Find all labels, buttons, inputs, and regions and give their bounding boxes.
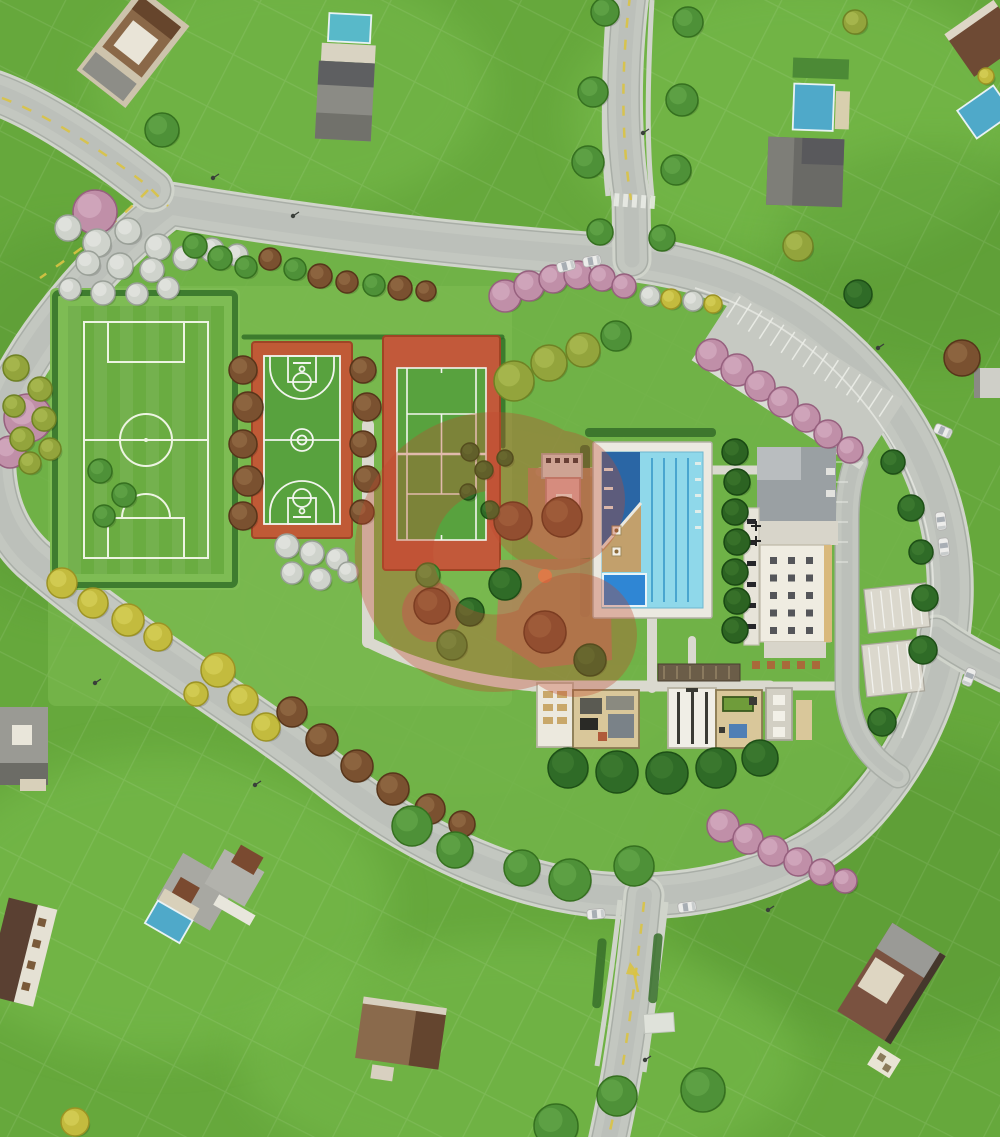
planter <box>752 661 760 669</box>
tree-yellow <box>144 623 173 652</box>
tree-flowering-pink <box>833 869 858 894</box>
tree-highlight <box>604 324 621 341</box>
restroom-building-part <box>557 704 567 711</box>
tree-highlight <box>663 291 674 302</box>
lamp-head <box>766 908 770 912</box>
tree-yellow <box>252 713 281 742</box>
tree-green <box>183 234 208 259</box>
tree-brown <box>353 393 382 422</box>
tree-highlight <box>725 501 739 515</box>
house-northeast-part <box>793 57 850 79</box>
tree-highlight <box>840 439 854 453</box>
skylight <box>806 610 813 617</box>
tree-green <box>572 146 605 179</box>
tree-green <box>112 483 137 508</box>
storage-units-part <box>773 727 785 737</box>
tree-yellow <box>661 289 683 311</box>
tree-shrub-white <box>281 562 304 585</box>
tree-highlight <box>261 250 273 262</box>
tree-green <box>392 806 433 846</box>
tree-green <box>88 459 113 484</box>
tree-shrub-white <box>91 281 116 306</box>
tree-olive <box>783 231 814 262</box>
tree-highlight <box>664 158 681 175</box>
tree-highlight <box>210 248 223 261</box>
tree-highlight <box>845 12 858 25</box>
tree-olive <box>39 438 62 461</box>
window-tick <box>747 561 756 566</box>
tree-highlight <box>357 468 371 482</box>
tree-highlight <box>699 342 717 360</box>
tree-olive <box>843 10 868 35</box>
tree-highlight <box>81 591 98 608</box>
pergola-roof <box>658 664 740 681</box>
pool-ledge-mark <box>695 526 701 529</box>
tree-highlight <box>441 835 461 855</box>
tree-shrub-white <box>107 253 134 280</box>
tree-shrub-white <box>157 277 180 300</box>
tree-highlight <box>727 531 741 545</box>
house-northeast-part <box>802 138 845 165</box>
tree-highlight <box>396 809 418 831</box>
tree-brown <box>229 430 258 459</box>
tree-darkgreen <box>596 751 639 793</box>
house-west-part <box>12 725 32 745</box>
tree-shrub-white <box>55 215 82 242</box>
tree-highlight <box>542 267 557 282</box>
tree-highlight <box>911 542 924 555</box>
tree-highlight <box>901 497 915 511</box>
tree-highlight <box>883 452 896 465</box>
crosswalk-bar <box>632 194 638 207</box>
tree-highlight <box>685 1072 709 1096</box>
tree-highlight <box>594 0 609 15</box>
tree-highlight <box>746 743 766 763</box>
tree-brown <box>229 502 258 531</box>
speed-table-surface <box>643 1012 674 1033</box>
tree-shrub-white <box>76 251 101 276</box>
bench-area <box>796 700 812 740</box>
window-tick <box>747 582 756 587</box>
skylight <box>788 575 795 582</box>
tree-highlight <box>237 258 249 270</box>
lamp-head <box>211 176 215 180</box>
tree-highlight <box>34 409 47 422</box>
tree-olive <box>531 345 568 381</box>
tree-conifer <box>722 559 749 586</box>
tree-highlight <box>614 276 627 289</box>
car-windshield <box>937 517 946 523</box>
crosswalk-bar <box>641 195 647 208</box>
tree-highlight <box>492 283 510 301</box>
tree-olive <box>3 355 30 382</box>
tree-highlight <box>232 504 247 519</box>
tree-highlight <box>380 776 398 794</box>
tree-highlight <box>147 625 162 640</box>
restroom-building-part <box>543 717 553 724</box>
house-northeast-part <box>793 84 835 131</box>
tree-highlight <box>86 231 101 246</box>
tree-highlight <box>538 1108 562 1132</box>
tree-highlight <box>871 710 886 725</box>
basketball-court <box>252 342 352 538</box>
tree-darkgreen <box>548 748 589 788</box>
tree-olive <box>494 361 535 401</box>
tree-yellow <box>184 682 209 707</box>
tree-highlight <box>669 87 687 105</box>
tree-highlight <box>204 656 223 675</box>
tree-highlight <box>847 282 862 297</box>
tree-highlight <box>725 619 739 633</box>
tree-highlight <box>581 80 598 97</box>
tree-highlight <box>590 221 604 235</box>
tree-highlight <box>517 274 534 291</box>
site-plan <box>0 0 1000 1137</box>
tree-brown <box>944 340 981 376</box>
bbq-pavilion-part <box>608 714 634 738</box>
house-northeast-part <box>835 91 850 129</box>
tree-highlight <box>344 753 362 771</box>
planter <box>812 661 820 669</box>
house-north-part <box>328 13 371 43</box>
restroom-building-part <box>543 704 553 711</box>
tree-highlight <box>30 379 43 392</box>
tree-green <box>649 225 676 252</box>
tree-highlight <box>700 751 722 773</box>
patio-table-top <box>615 550 619 554</box>
lamp-head <box>876 346 880 350</box>
tree-highlight <box>93 283 106 296</box>
tree-flowering-pink <box>612 274 637 299</box>
tree-highlight <box>353 359 367 373</box>
house-north-part <box>321 43 376 64</box>
tree-highlight <box>418 283 429 294</box>
tree-highlight <box>232 432 247 447</box>
lamp-head <box>291 214 295 218</box>
parked-car <box>677 901 696 913</box>
restroom-building-part <box>557 717 567 724</box>
tree-highlight <box>280 700 297 717</box>
tree-flowering-pink <box>837 437 864 464</box>
tree-highlight <box>95 507 107 519</box>
tree-highlight <box>725 561 739 575</box>
tree-highlight <box>128 285 140 297</box>
tree-highlight <box>748 374 765 391</box>
tree-highlight <box>508 853 528 873</box>
tree-highlight <box>618 849 640 871</box>
tree-highlight <box>553 863 576 886</box>
tree-highlight <box>118 220 132 234</box>
tree-highlight <box>390 278 403 291</box>
tree-brown <box>233 392 264 423</box>
tree-darkgreen <box>696 748 737 788</box>
tree-highlight <box>231 688 248 705</box>
tree-highlight <box>110 255 124 269</box>
pool-ledge-mark <box>695 462 701 465</box>
tree-brown <box>388 276 413 301</box>
tree-green <box>666 84 699 117</box>
parked-car <box>587 908 606 920</box>
tree-brown <box>259 248 282 271</box>
tree-highlight <box>552 751 574 773</box>
skylight <box>770 575 777 582</box>
mow-stripe <box>68 306 81 574</box>
tree-green <box>597 1076 638 1116</box>
tree-highlight <box>185 236 198 249</box>
tree-darkgreen <box>742 740 779 776</box>
tree-highlight <box>492 571 510 589</box>
tree-highlight <box>310 266 323 279</box>
crosswalk-bar <box>614 193 620 206</box>
lamp-head <box>93 681 97 685</box>
tree-brown <box>233 466 264 497</box>
kids-pavilion-part <box>719 727 725 733</box>
tree-highlight <box>600 755 623 778</box>
changing-rooms <box>668 688 716 748</box>
tree-yellow <box>201 653 236 687</box>
bbq-pavilion-part <box>580 718 598 730</box>
tree-olive <box>32 407 57 432</box>
pergola <box>658 664 740 681</box>
parked-car <box>938 537 950 556</box>
tree-brown <box>308 264 333 289</box>
clubhouse-part <box>757 447 801 480</box>
tree-highlight <box>236 469 253 486</box>
skylight <box>770 592 777 599</box>
tree-highlight <box>186 684 199 697</box>
skylight <box>806 575 813 582</box>
changing-rooms-part <box>705 692 708 744</box>
tree-olive <box>19 452 42 475</box>
tree-green <box>591 0 620 27</box>
tree-highlight <box>78 253 91 266</box>
tree-yellow <box>61 1108 90 1137</box>
tree-highlight <box>277 536 290 549</box>
tree-conifer <box>722 499 749 526</box>
site-plan-canvas <box>0 0 1000 1137</box>
planter <box>782 661 790 669</box>
tree-brown <box>341 750 374 783</box>
parked-car <box>935 511 947 530</box>
tree-brown <box>277 697 308 728</box>
tree-highlight <box>817 422 832 437</box>
kids-pavilion <box>716 690 762 748</box>
speed-table <box>643 1012 674 1033</box>
clubhouse-part <box>826 490 835 497</box>
tree-highlight <box>365 276 377 288</box>
kids-pavilion-part <box>723 697 753 711</box>
center-spot <box>144 438 148 442</box>
car-windshield <box>592 910 598 918</box>
tree-highlight <box>328 550 340 562</box>
tree-green <box>549 859 592 901</box>
tree-highlight <box>706 297 716 307</box>
kids-pavilion-part <box>729 724 747 738</box>
tree-highlight <box>61 280 73 292</box>
tree-shrub-white <box>275 534 300 559</box>
tree-yellow <box>112 604 145 637</box>
bbq-pavilion-part <box>580 698 602 714</box>
tree-highlight <box>338 273 350 285</box>
tree-highlight <box>159 279 171 291</box>
tree-highlight <box>812 861 826 875</box>
house-west <box>0 707 48 791</box>
tree-highlight <box>64 1110 79 1125</box>
tree-brown <box>416 281 438 303</box>
skylight <box>788 610 795 617</box>
tree-flowering-pink <box>809 859 836 886</box>
tree-shrub-white <box>300 541 325 566</box>
tree-brown <box>350 431 377 458</box>
house-north-part <box>318 61 375 88</box>
tree-shrub-white <box>126 283 149 306</box>
soccer-field <box>50 288 240 590</box>
bbq-pavilion-part <box>606 696 634 710</box>
storage-units-part <box>773 711 785 721</box>
tree-darkgreen <box>912 585 939 612</box>
changing-rooms-part <box>691 692 694 744</box>
clubhouse-part <box>826 468 835 475</box>
tree-green <box>578 77 609 108</box>
tree-highlight <box>283 564 295 576</box>
tree-darkgreen <box>844 280 873 309</box>
tree-highlight <box>786 234 803 251</box>
tree-highlight <box>676 10 693 27</box>
tree-highlight <box>835 871 848 884</box>
clubhouse-complex <box>744 447 838 669</box>
tree-shrub-white <box>145 234 172 261</box>
tree-darkgreen <box>909 540 934 565</box>
tree-green <box>145 113 180 147</box>
tree-highlight <box>5 397 17 409</box>
tree-conifer <box>722 617 749 644</box>
tree-green <box>673 7 704 38</box>
tree-green <box>437 832 474 868</box>
lamp-head <box>643 1058 647 1062</box>
tree-green <box>363 274 386 297</box>
tree-highlight <box>535 348 555 368</box>
tree-shrub-white <box>640 286 662 308</box>
pool-ledge-mark <box>695 478 701 481</box>
car-windshield <box>940 543 949 549</box>
tree-highlight <box>724 357 742 375</box>
tree-highlight <box>642 288 653 299</box>
tree-highlight <box>286 260 298 272</box>
tree-highlight <box>115 607 133 625</box>
tree-highlight <box>498 364 520 386</box>
kids-pavilion-part <box>749 697 757 705</box>
tree-highlight <box>452 813 466 827</box>
house-west-part <box>20 779 46 791</box>
tree-highlight <box>685 293 696 304</box>
tree-highlight <box>771 390 788 407</box>
tree-highlight <box>236 395 253 412</box>
bench-area-part <box>796 700 812 740</box>
tree-highlight <box>736 827 753 844</box>
tree-olive <box>28 377 53 402</box>
house-northeast-part <box>766 137 794 206</box>
tree-highlight <box>77 194 101 218</box>
tree-highlight <box>90 461 103 474</box>
watermark-disc <box>485 430 625 570</box>
tree-highlight <box>309 727 327 745</box>
tree-highlight <box>727 590 741 604</box>
tree-highlight <box>727 471 741 485</box>
lamp-head <box>253 783 257 787</box>
bbq-pavilion-part <box>598 732 607 741</box>
tree-shrub-white <box>683 291 705 313</box>
tree-highlight <box>311 570 323 582</box>
planter <box>797 661 805 669</box>
tree-green <box>614 846 655 886</box>
changing-rooms-part <box>686 688 698 692</box>
tree-highlight <box>21 454 33 466</box>
tree-highlight <box>148 236 162 250</box>
tree-highlight <box>575 149 593 167</box>
tree-highlight <box>50 571 67 588</box>
tree-highlight <box>114 485 127 498</box>
skylight <box>770 557 777 564</box>
tree-darkgreen <box>489 568 522 601</box>
tree-brown <box>350 357 377 384</box>
window-tick <box>747 519 756 524</box>
tree-highlight <box>652 227 666 241</box>
tree-highlight <box>569 336 588 355</box>
tree-brown <box>336 271 359 294</box>
skylight <box>806 592 813 599</box>
tree-highlight <box>650 756 673 779</box>
tree-shrub-white <box>115 218 142 245</box>
house-east-edge <box>974 368 1000 398</box>
tree-highlight <box>787 850 802 865</box>
tree-conifer <box>722 439 749 466</box>
tree-olive <box>566 333 601 367</box>
tree-highlight <box>912 638 927 653</box>
tree-highlight <box>12 429 25 442</box>
tree-green <box>93 505 116 528</box>
lamp-head <box>641 131 645 135</box>
storage-units <box>766 688 792 740</box>
house-north-part <box>315 113 372 142</box>
tree-green <box>601 321 632 352</box>
tree-highlight <box>302 543 315 556</box>
crosswalk-bar <box>623 194 629 207</box>
tree-green <box>587 219 614 246</box>
tree-highlight <box>353 433 367 447</box>
tree-highlight <box>725 441 739 455</box>
tree-olive <box>3 395 26 418</box>
tree-yellow <box>78 588 109 619</box>
tree-green <box>681 1068 726 1112</box>
tree-highlight <box>142 260 155 273</box>
tree-highlight <box>601 1079 623 1101</box>
tree-highlight <box>255 715 270 730</box>
pool-ledge-mark <box>695 494 701 497</box>
skylight <box>788 557 795 564</box>
storage-units-part <box>773 695 785 705</box>
tree-highlight <box>761 839 778 856</box>
tree-highlight <box>915 587 929 601</box>
tree-darkgreen <box>646 752 689 794</box>
tree-green <box>235 256 258 279</box>
tree-green <box>504 850 541 886</box>
skylight <box>770 627 777 634</box>
tree-yellow <box>47 568 78 599</box>
tree-olive <box>10 427 35 452</box>
skylight <box>806 557 813 564</box>
tree-highlight <box>232 358 247 373</box>
tree-green <box>208 246 233 271</box>
